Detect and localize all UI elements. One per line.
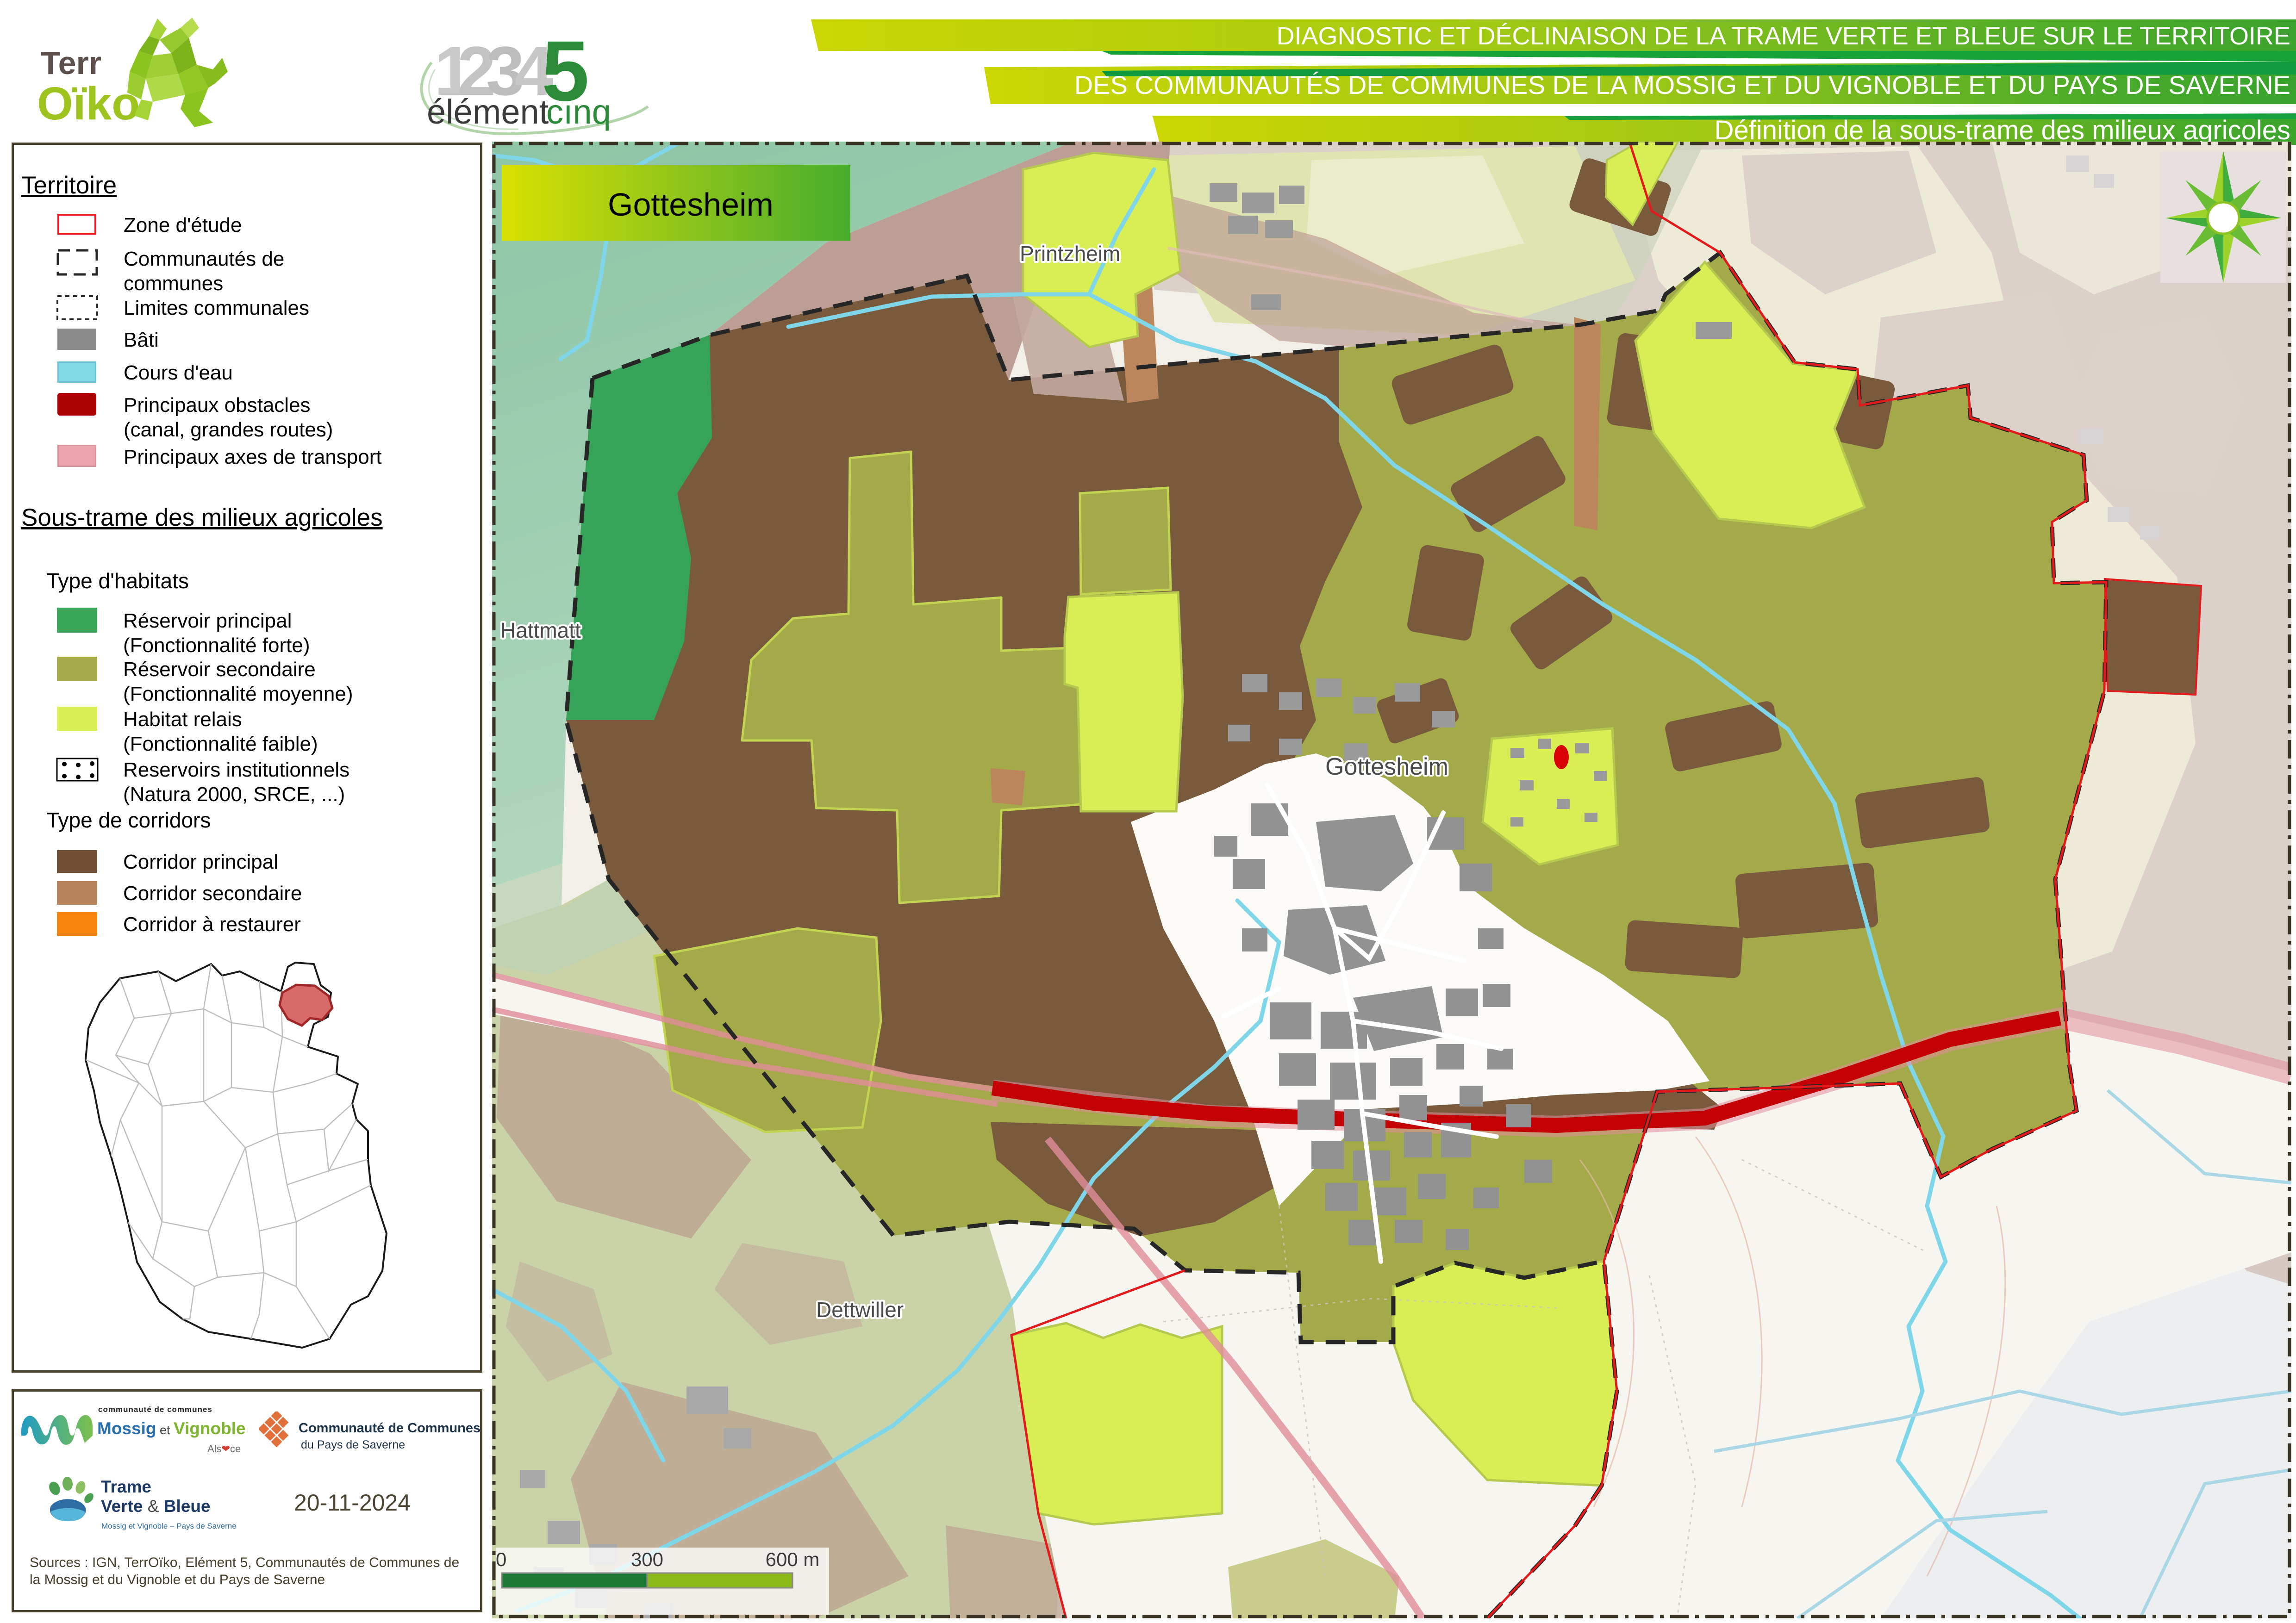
svg-text:cınq: cınq xyxy=(546,93,611,131)
svg-text:300: 300 xyxy=(631,1548,663,1570)
svg-text:Hattmatt: Hattmatt xyxy=(500,618,581,642)
svg-text:DES COMMUNAUTÉS DE COMMUNES DE: DES COMMUNAUTÉS DE COMMUNES DE LA MOSSIG… xyxy=(1074,70,2290,99)
svg-text:Oïko: Oïko xyxy=(37,78,140,130)
svg-text:Gottesheim: Gottesheim xyxy=(608,187,774,223)
svg-text:Définition de la sous-trame de: Définition de la sous-trame des milieux … xyxy=(1715,115,2290,145)
svg-text:Printzheim: Printzheim xyxy=(1020,242,1120,266)
svg-text:Gottesheim: Gottesheim xyxy=(1325,753,1448,780)
svg-text:Dettwiller: Dettwiller xyxy=(816,1298,904,1322)
svg-text:DIAGNOSTIC ET DÉCLINAISON DE L: DIAGNOSTIC ET DÉCLINAISON DE LA TRAME VE… xyxy=(1276,22,2290,50)
svg-text:Terr: Terr xyxy=(41,45,101,81)
svg-text:élément: élément xyxy=(427,93,549,131)
svg-text:0: 0 xyxy=(496,1548,506,1570)
svg-text:600 m: 600 m xyxy=(766,1548,820,1570)
